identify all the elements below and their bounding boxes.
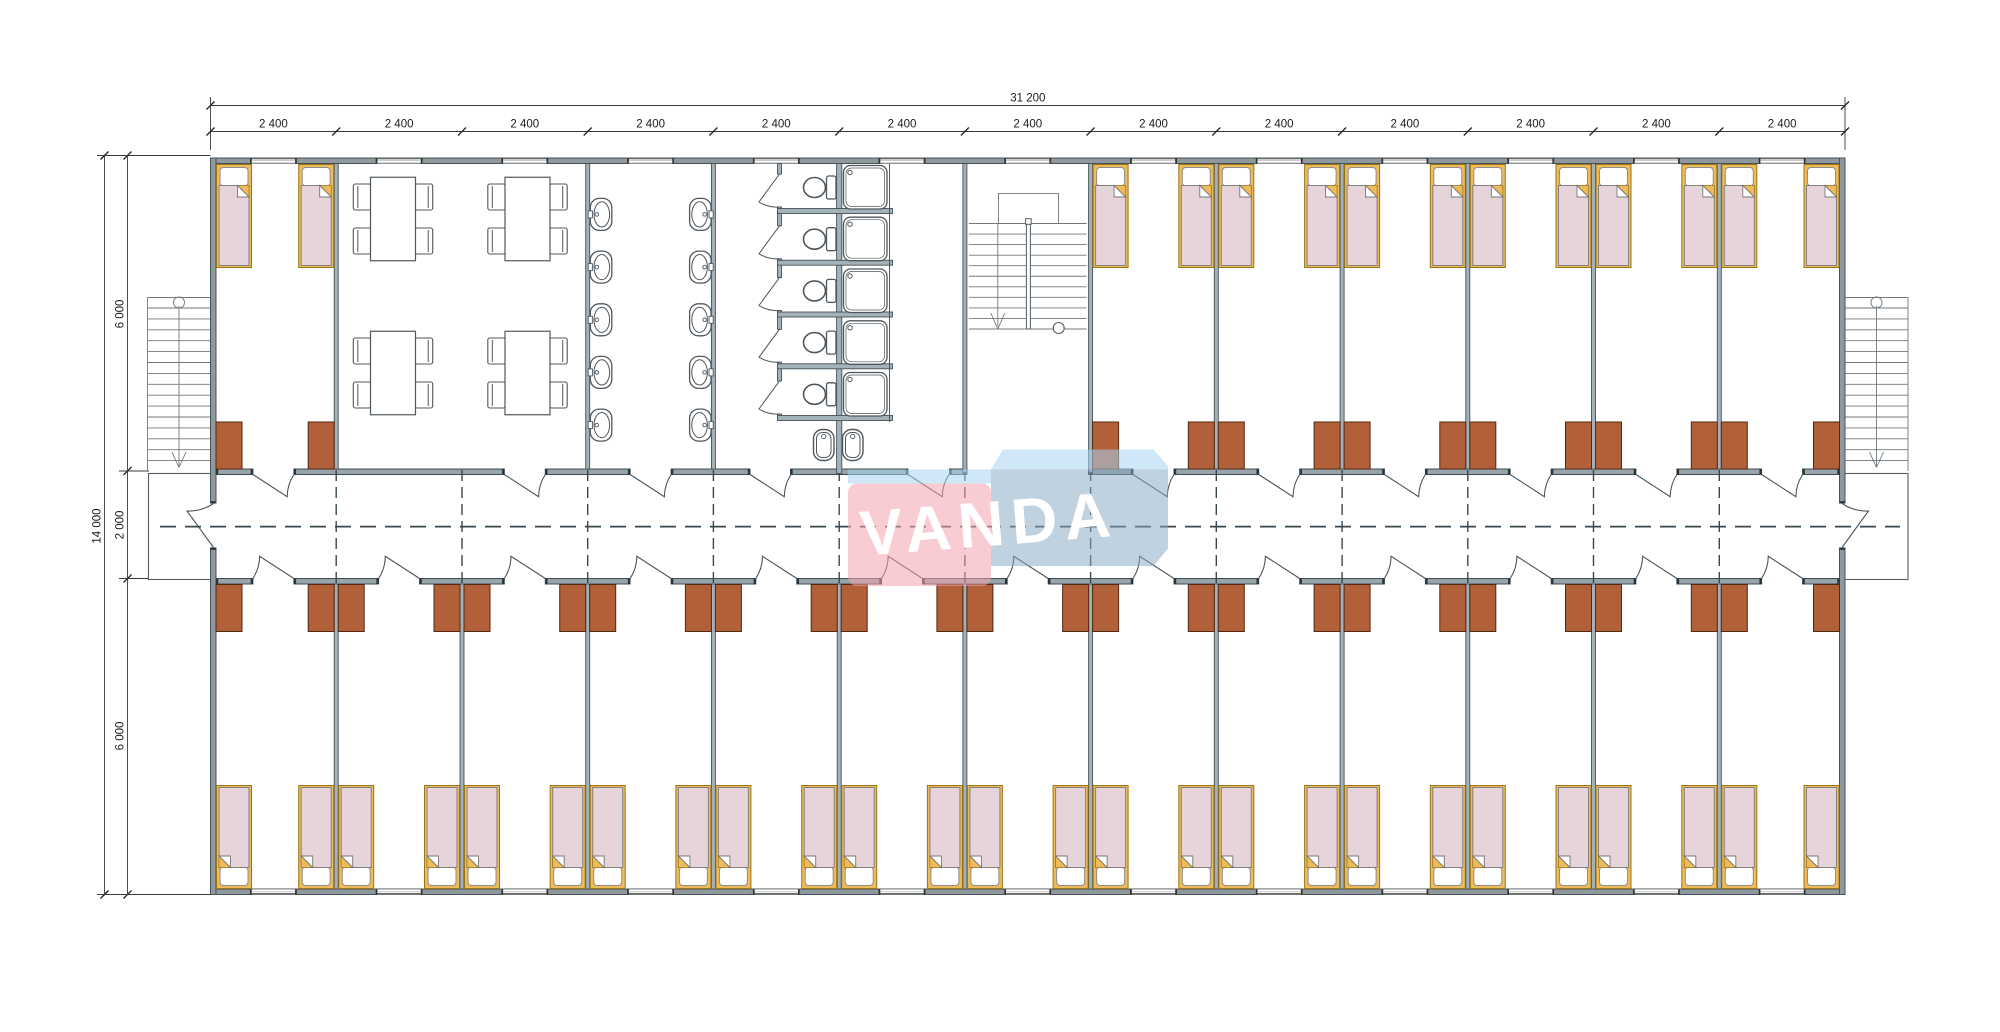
svg-text:2 400: 2 400 bbox=[1516, 119, 1545, 131]
svg-text:2 400: 2 400 bbox=[888, 119, 917, 131]
svg-text:2 400: 2 400 bbox=[1391, 119, 1420, 131]
svg-text:2 400: 2 400 bbox=[636, 119, 665, 131]
svg-text:14 000: 14 000 bbox=[92, 508, 104, 543]
svg-text:2 400: 2 400 bbox=[1768, 119, 1797, 131]
svg-text:2 400: 2 400 bbox=[1265, 119, 1294, 131]
svg-text:2 400: 2 400 bbox=[762, 119, 791, 131]
svg-text:2 000: 2 000 bbox=[115, 511, 127, 540]
svg-text:2 400: 2 400 bbox=[1013, 119, 1042, 131]
svg-text:2 400: 2 400 bbox=[385, 119, 414, 131]
svg-text:2 400: 2 400 bbox=[259, 119, 288, 131]
svg-text:6 000: 6 000 bbox=[115, 300, 127, 329]
svg-text:2 400: 2 400 bbox=[1139, 119, 1168, 131]
svg-text:2 400: 2 400 bbox=[1642, 119, 1671, 131]
svg-text:31 200: 31 200 bbox=[1010, 93, 1045, 105]
svg-text:6 000: 6 000 bbox=[115, 722, 127, 751]
svg-text:2 400: 2 400 bbox=[510, 119, 539, 131]
